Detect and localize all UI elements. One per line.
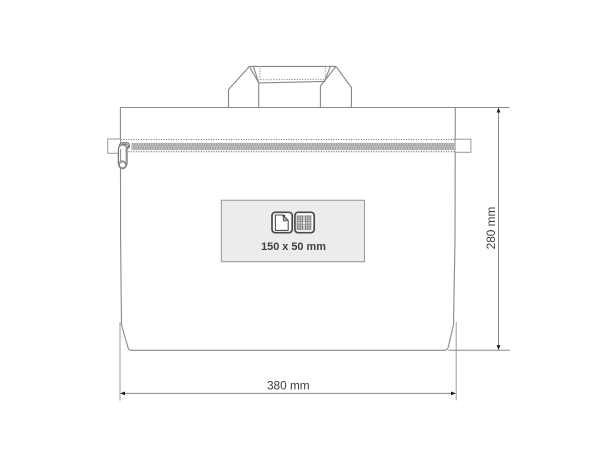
svg-text:150 x 50 mm: 150 x 50 mm	[261, 241, 326, 253]
svg-text:380 mm: 380 mm	[267, 379, 310, 393]
svg-text:280 mm: 280 mm	[484, 207, 498, 250]
